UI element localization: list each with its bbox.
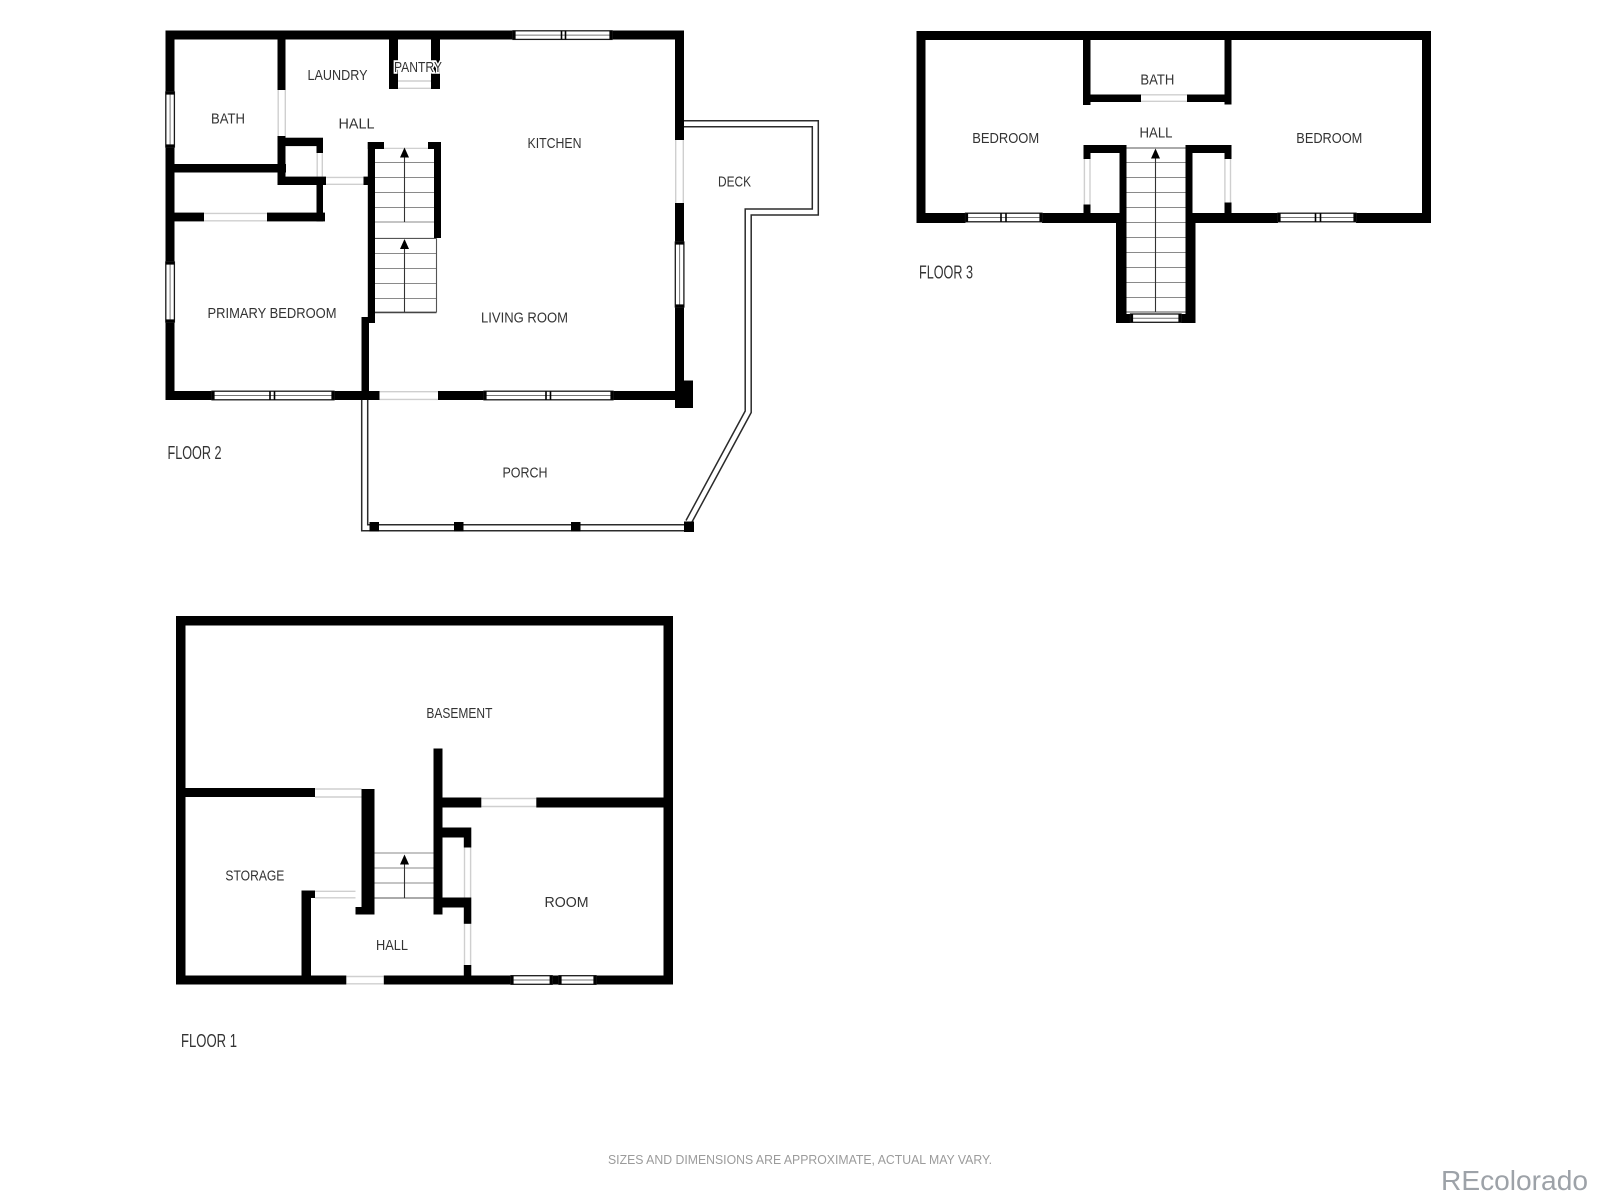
- svg-text:BEDROOM: BEDROOM: [972, 130, 1039, 147]
- svg-text:PORCH: PORCH: [503, 465, 548, 482]
- svg-text:FLOOR 1: FLOOR 1: [181, 1031, 237, 1051]
- svg-text:BATH: BATH: [211, 111, 245, 128]
- svg-text:PRIMARY BEDROOM: PRIMARY BEDROOM: [208, 305, 337, 322]
- svg-text:HALL: HALL: [339, 116, 375, 133]
- svg-text:ROOM: ROOM: [545, 894, 589, 911]
- svg-text:LIVING ROOM: LIVING ROOM: [481, 310, 568, 327]
- svg-text:HALL: HALL: [376, 937, 408, 954]
- svg-text:DECK: DECK: [718, 174, 751, 191]
- svg-text:BEDROOM: BEDROOM: [1296, 130, 1362, 147]
- svg-text:PANTRY: PANTRY: [394, 59, 442, 76]
- svg-text:BASEMENT: BASEMENT: [426, 705, 492, 722]
- svg-text:FLOOR 3: FLOOR 3: [919, 263, 973, 283]
- svg-text:HALL: HALL: [1140, 125, 1173, 142]
- svg-text:STORAGE: STORAGE: [225, 868, 284, 885]
- svg-text:BATH: BATH: [1140, 72, 1174, 89]
- svg-text:REcolorado: REcolorado: [1441, 1165, 1588, 1196]
- svg-text:SIZES AND DIMENSIONS ARE APPRO: SIZES AND DIMENSIONS ARE APPROXIMATE, AC…: [608, 1153, 992, 1167]
- svg-text:LAUNDRY: LAUNDRY: [308, 67, 368, 84]
- svg-text:KITCHEN: KITCHEN: [528, 135, 582, 152]
- svg-text:FLOOR 2: FLOOR 2: [168, 443, 222, 463]
